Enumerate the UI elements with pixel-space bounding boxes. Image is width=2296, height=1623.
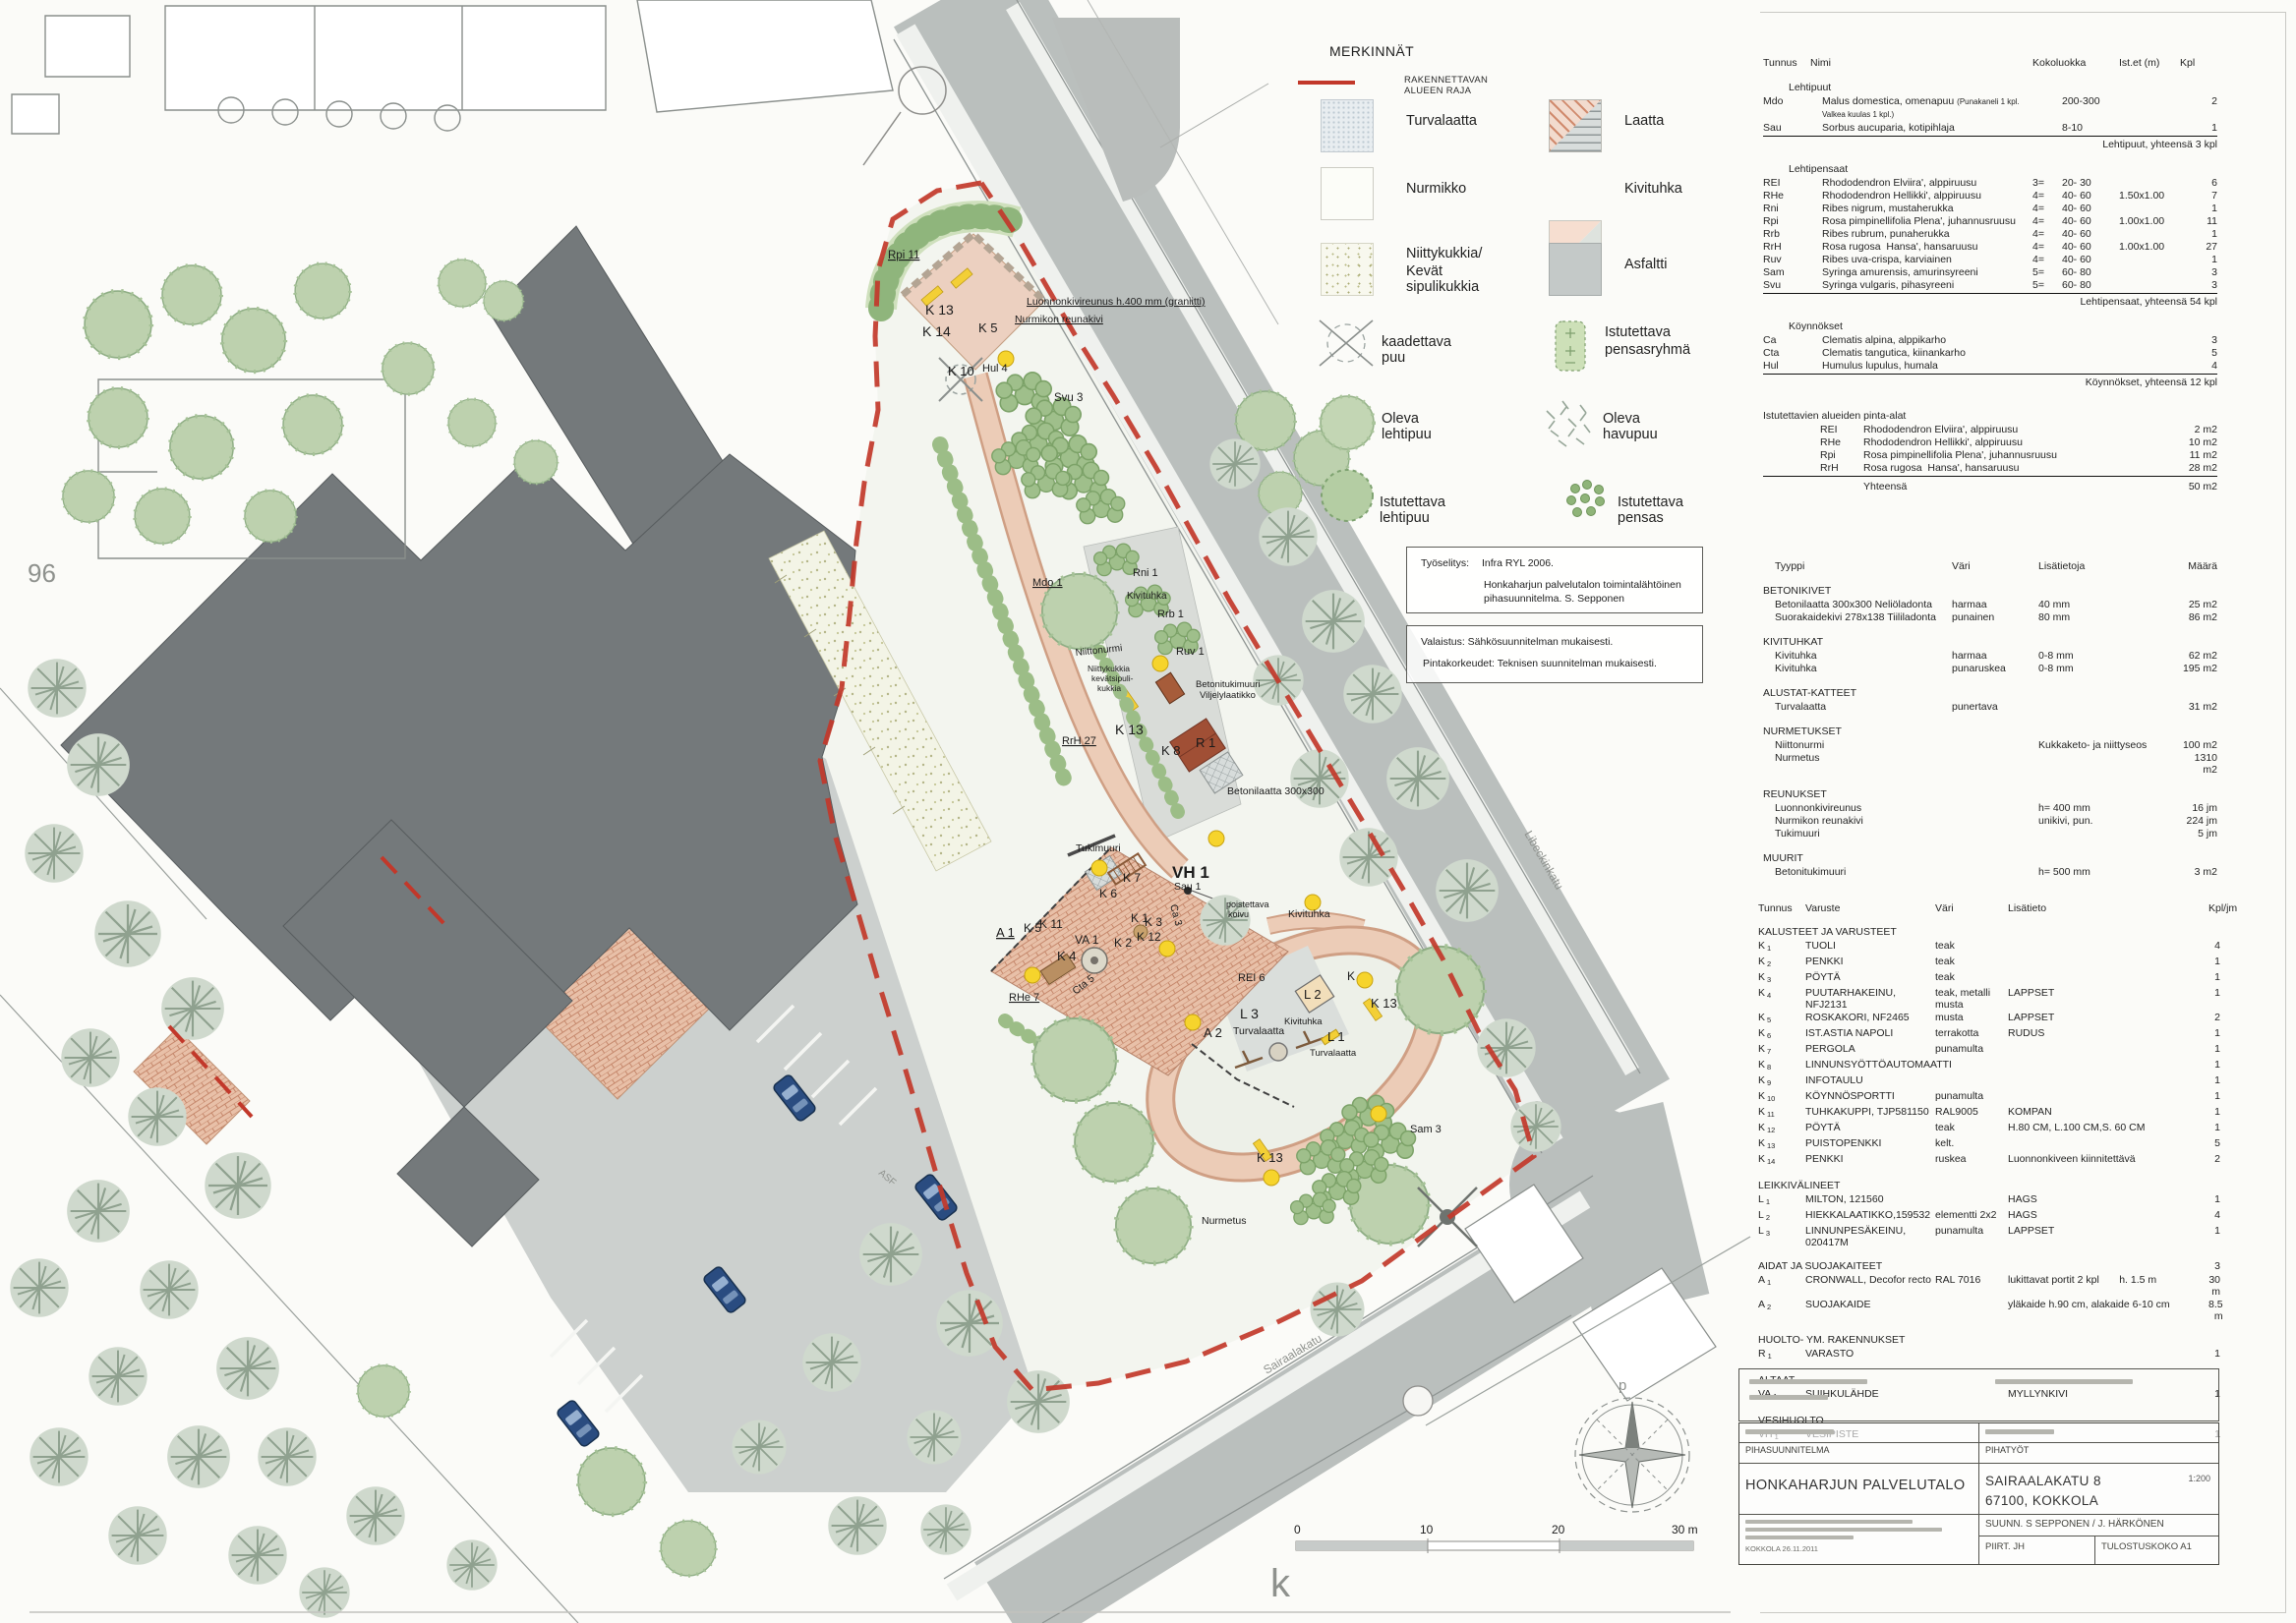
project-address1: SAIRAALAKATU 8 (1985, 1474, 2101, 1488)
plan-label: A 2 (1204, 1025, 1222, 1040)
plan-label: poistettava (1226, 899, 1269, 909)
legend-label: Laatta (1624, 113, 1664, 129)
boundary-label: RAKENNETTAVAN ALUEEN RAJA (1404, 75, 1488, 96)
equipment-row: L2HIEKKALAATIKKO,159532elementti 2x2HAGS… (1758, 1209, 2220, 1224)
surface-levels-note: Pintakorkeudet: Teknisen suunnitelman mu… (1423, 658, 1657, 669)
title-block-upper (1738, 1368, 2219, 1421)
materials-section-title: KIVITUHKAT (1763, 636, 2217, 648)
niittykukkia-swatch (1321, 243, 1374, 296)
plan-label: 30 m (1672, 1523, 1698, 1536)
material-row: Nurmetus1310 m2 (1763, 752, 2217, 776)
plan-label: Svu 3 (1054, 392, 1083, 404)
planted-deciduous-tree-icon (1316, 464, 1379, 532)
plan-label: A 1 (996, 925, 1015, 940)
work-description-box: Työselitys: Infra RYL 2006. Honkaharjun … (1406, 547, 1703, 613)
equipment-section-title: AIDAT JA SUOJAKAITEET3 (1758, 1260, 2220, 1272)
plan-label: Rni 1 (1133, 567, 1158, 579)
area-row: RHeRhododendron Hellikki', alppiruusu10 … (1763, 436, 2217, 448)
material-row: Kivituhkaharmaa0-8 mm62 m2 (1763, 650, 2217, 662)
area-total: Yhteensä50 m2 (1763, 481, 2217, 493)
equipment-section-title: LEIKKIVÄLINEET (1758, 1180, 2220, 1191)
plan-label: RrH 27 (1062, 735, 1096, 747)
equipment-row: K4PUUTARHAKEINU, NFJ2131teak, metalli mu… (1758, 987, 2220, 1011)
equipment-table: TunnusVarusteVäriLisätietoKpl/jmKALUSTEE… (1758, 902, 2220, 1444)
plan-label: K 6 (1099, 887, 1117, 900)
title-block-cell (1979, 1423, 2218, 1442)
plant-row: RrHRosa rugosa Hansa', hansaruusu4=40- 6… (1763, 241, 2217, 253)
plan-label: kukkia (1097, 683, 1121, 693)
plant-row: CaClematis alpina, alppikarho3 (1763, 334, 2217, 346)
work-desc-value: Infra RYL 2006. (1482, 557, 1554, 569)
lighting-note-box: Valaistus: Sähkösuunnitelman mukaisesti.… (1406, 625, 1703, 683)
plan-label: K 3 (1145, 915, 1162, 929)
plan-label: Viljelylaatikko (1200, 690, 1256, 701)
area-row: RrHRosa rugosa Hansa', hansaruusu28 m2 (1763, 462, 2217, 474)
plan-label: REI 6 (1238, 972, 1266, 984)
pinta-alat-title: Istutettavien alueiden pinta-alat (1763, 410, 2217, 422)
plan-label: K 4 (1057, 949, 1077, 963)
legend-label: Kevät sipulikukkia (1406, 263, 1479, 295)
plan-label: RHe 7 (1009, 992, 1039, 1004)
equipment-row: K13PUISTOPENKKIkelt.5 (1758, 1137, 2220, 1152)
materials-section-title: MUURIT (1763, 852, 2217, 864)
plant-row: RuvRibes uva-crispa, karviainen4=40- 601 (1763, 254, 2217, 265)
site-plan-drawing: 96Rpi 11K 13K 14K 5K 10Hul 4Svu 3Luonnon… (0, 0, 1760, 1623)
plan-label: K 12 (1137, 930, 1161, 944)
plan-label: 0 (1294, 1523, 1301, 1536)
schedule-total: Köynnökset, yhteensä 12 kpl (1763, 375, 2217, 388)
shrub-group-icon (1554, 319, 1587, 377)
plan-label: K 5 (978, 320, 998, 335)
plant-row: RrbRibes rubrum, punaherukka4=40- 601 (1763, 228, 2217, 240)
materials-header: TyyppiVäriLisätietojaMäärä (1763, 560, 2217, 572)
legend-label: Asfaltti (1624, 257, 1668, 272)
project-name: HONKAHARJUN PALVELUTALO (1739, 1464, 1979, 1514)
plant-row: SvuSyringa vulgaris, pihasyreeni5=60- 80… (1763, 279, 2217, 291)
planted-shrub-icon (1563, 479, 1613, 527)
asfaltti-swatch (1549, 243, 1602, 296)
boundary-line-sample (1298, 81, 1355, 85)
legend-title: MERKINNÄT (1329, 43, 1414, 59)
area-row: REIRhododendron Elviira', alppiruusu2 m2 (1763, 424, 2217, 435)
equipment-row: K6IST.ASTIA NAPOLIterrakottaRUDUS1 (1758, 1027, 2220, 1042)
materials-section-title: BETONIKIVET (1763, 585, 2217, 597)
equipment-section-title: HUOLTO- YM. RAKENNUKSET (1758, 1334, 2220, 1346)
material-row: Betonilaatta 300x300 Neliöladontaharmaa4… (1763, 599, 2217, 610)
equipment-row: A2SUOJAKAIDEyläkaide h.90 cm, alakaide 6… (1758, 1299, 2220, 1322)
plan-label: K 8 (1161, 743, 1181, 758)
plan-label: K 7 (1123, 871, 1141, 885)
materials-section-title: ALUSTAT-KATTEET (1763, 687, 2217, 699)
plan-label: L 1 (1327, 1029, 1345, 1044)
area-row: RpiRosa pimpinellifolia Plena', juhannus… (1763, 449, 2217, 461)
equipment-row: K1TUOLIteak4 (1758, 940, 2220, 955)
laatta-swatch (1549, 99, 1602, 152)
legend-label: Nurmikko (1406, 181, 1466, 197)
plan-label: Rrb 1 (1157, 609, 1184, 620)
plan-label: K (1347, 969, 1355, 983)
drawing-sheet: 96Rpi 11K 13K 14K 5K 10Hul 4Svu 3Luonnon… (0, 0, 2296, 1623)
plan-label: K 11 (1039, 917, 1063, 931)
legend-label: Istutettava (1605, 324, 1671, 340)
plant-row: SamSyringa amurensis, amurinsyreeni5=60-… (1763, 266, 2217, 278)
equipment-row: K9INFOTAULU1 (1758, 1074, 2220, 1089)
turvalaatta-swatch (1321, 99, 1374, 152)
title-block: PIHASUUNNITELMA PIHATYÖT HONKAHARJUN PAL… (1738, 1422, 2219, 1565)
equipment-row: A1CRONWALL, Decofor rectoRAL 7016lukitta… (1758, 1274, 2220, 1298)
plan-label: p (1619, 1377, 1626, 1394)
equipment-row: K5ROSKAKORI, NF2465mustaLAPPSET2 (1758, 1012, 2220, 1026)
plan-label: VH 1 (1172, 863, 1209, 882)
legend-label: Oleva havupuu (1603, 411, 1658, 442)
schedule-section-title: Köynnökset (1763, 320, 2217, 332)
plan-label: Luonnonkivireunus h.400 mm (graniitti) (1027, 296, 1206, 308)
equipment-header: TunnusVarusteVäriLisätietoKpl/jm (1758, 902, 2220, 914)
material-row: Luonnonkivireunush= 400 mm16 jm (1763, 802, 2217, 814)
plan-label: Rpi 11 (888, 250, 919, 261)
legend-label: Turvalaatta (1406, 113, 1477, 129)
material-row: Tukimuuri5 jm (1763, 828, 2217, 840)
plan-label: Ruv 1 (1176, 646, 1205, 658)
firm-info-cell: KOKKOLA 26.11.2011 (1739, 1515, 1979, 1564)
plant-row: RniRibes nigrum, mustaherukka4=40- 601 (1763, 203, 2217, 214)
plan-label: Betonilaatta 300x300 (1227, 785, 1325, 797)
equipment-row: K2PENKKIteak1 (1758, 956, 2220, 970)
plan-label: R 1 (1196, 735, 1215, 750)
plan-label: 96 (28, 558, 56, 588)
plant-row: RHeRhododendron Hellikki', alppiruusu4=4… (1763, 190, 2217, 202)
schedule-total: Lehtipuut, yhteensä 3 kpl (1763, 137, 2217, 150)
plan-label: Sam 3 (1410, 1124, 1442, 1135)
plan-label: Hul 4 (982, 363, 1008, 375)
nurmikko-swatch (1321, 167, 1374, 220)
plan-label: k (1270, 1562, 1291, 1605)
work-desc-line2: Honkaharjun palvelutalon toimintalähtöin… (1484, 579, 1681, 591)
plan-label: Mdo 1 (1032, 577, 1063, 589)
plan-label: 20 (1552, 1523, 1565, 1536)
equipment-row: K8LINNUNSYÖTTÖAUTOMAATTI1 (1758, 1059, 2220, 1073)
materials-table: TyyppiVäriLisätietojaMääräBETONIKIVETBet… (1763, 560, 2217, 879)
plan-label: K 10 (948, 364, 974, 378)
plan-label: Betonitukimuuri (1196, 679, 1260, 690)
existing-conifer-icon (1537, 391, 1600, 459)
plan-label: Turvalaatta (1233, 1025, 1284, 1037)
work-desc-label: Työselitys: (1421, 557, 1469, 569)
plant-schedule-table: TunnusNimiKokoluokkaIst.et (m)KplLehtipu… (1763, 57, 2217, 493)
plan-label: Sau 1 (1174, 881, 1202, 893)
equipment-row: K11TUHKAKUPPI, TJP581150RAL9005KOMPAN1 (1758, 1106, 2220, 1121)
project-address2: 67100, KOKKOLA (1985, 1493, 2098, 1508)
plan-label: K 13 (1371, 996, 1397, 1011)
doc-type: PIHASUUNNITELMA (1739, 1443, 1979, 1463)
plan-label: Nurmikon reunakivi (1015, 314, 1103, 325)
plan-label: K 14 (922, 323, 951, 339)
felled-tree-icon (1316, 317, 1377, 377)
plan-label: Nurmetus (1202, 1215, 1247, 1227)
equipment-row: K3PÖYTÄteak1 (1758, 971, 2220, 986)
legend-label: kaadettava puu (1382, 334, 1451, 366)
legend-label: Niittykukkia/ (1406, 246, 1482, 261)
material-row: NiittonurmiKukkaketo- ja niittyseos100 m… (1763, 739, 2217, 751)
date-place: KOKKOLA 26.11.2011 (1745, 1544, 1972, 1553)
legend: MERKINNÄT RAKENNETTAVAN ALUEEN RAJA Turv… (0, 0, 53, 106)
equipment-row: K7PERGOLApunamulta1 (1758, 1043, 2220, 1058)
existing-deciduous-tree-icon (1316, 391, 1379, 459)
plan-label: K 2 (1114, 936, 1132, 950)
plan-label: Kivituhka (1127, 591, 1167, 602)
schedule-section-title: Lehtipensaat (1763, 163, 2217, 175)
plan-label: Kivituhka (1288, 908, 1330, 920)
print-size: TULOSTUSKOKO A1 (2095, 1536, 2218, 1564)
plant-row: SauSorbus aucuparia, kotipihlaja8-101 (1763, 122, 2217, 134)
doc-type2: PIHATYÖT (1979, 1443, 2218, 1463)
plan-label: K 13 (925, 302, 954, 318)
plan-label: VA 1 (1075, 933, 1099, 947)
legend-label: Oleva lehtipuu (1382, 411, 1432, 442)
plan-label: L 2 (1304, 987, 1322, 1002)
plant-row: REIRhododendron Elviira', alppiruusu3=20… (1763, 177, 2217, 189)
plant-row: MdoMalus domestica, omenapuu (Punakaneli… (1763, 95, 2217, 121)
legend-label: Kivituhka (1624, 181, 1682, 197)
plan-label: Kivituhka (1284, 1016, 1323, 1027)
schedule-total: Lehtipensaat, yhteensä 54 kpl (1763, 294, 2217, 308)
material-row: Betonitukimuurih= 500 mm3 m2 (1763, 866, 2217, 878)
plant-schedule-header: TunnusNimiKokoluokkaIst.et (m)Kpl (1763, 57, 2217, 69)
plan-label: K 13 (1115, 722, 1144, 737)
plan-label: Turvalaatta (1310, 1048, 1357, 1059)
schedule-section-title: Lehtipuut (1763, 82, 2217, 93)
plant-row: RpiRosa pimpinellifolia Plena', juhannus… (1763, 215, 2217, 227)
material-row: Kivituhkapunaruskea0-8 mm195 m2 (1763, 663, 2217, 674)
equipment-row: R1VARASTO1 (1758, 1348, 2220, 1362)
drafter: PIIRT. JH (1979, 1536, 2095, 1564)
plan-label: kevätsipuli- (1091, 673, 1134, 683)
designer: SUUNN. S SEPPONEN / J. HÄRKÖNEN (1979, 1515, 2218, 1536)
work-desc-line3: pihasuunnitelma. S. Sepponen (1484, 593, 1624, 605)
equipment-row: L3LINNUNPESÄKEINU, 020417MpunamultaLAPPS… (1758, 1225, 2220, 1248)
plant-row: CtaClematis tangutica, kiinankarho5 (1763, 347, 2217, 359)
rule (1763, 476, 2217, 477)
equipment-row: L1MILTON, 121560HAGS1 (1758, 1193, 2220, 1208)
materials-section-title: NURMETUKSET (1763, 725, 2217, 737)
material-row: Nurmikon reunakiviunikivi, pun.224 jm (1763, 815, 2217, 827)
equipment-section-title: KALUSTEET JA VARUSTEET (1758, 926, 2220, 938)
plan-label: L 3 (1240, 1006, 1259, 1021)
plan-label: K 13 (1257, 1150, 1283, 1165)
plan-label: 10 (1420, 1523, 1434, 1536)
legend-label: Istutettava lehtipuu (1380, 494, 1445, 526)
plant-row: HulHumulus lupulus, humala4 (1763, 360, 2217, 372)
materials-section-title: REUNUKSET (1763, 788, 2217, 800)
title-block-cell (1739, 1423, 1979, 1442)
plan-label: koivu (1228, 909, 1249, 919)
equipment-row: K14PENKKIruskeaLuonnonkiveen kiinnitettä… (1758, 1153, 2220, 1168)
lighting-note: Valaistus: Sähkösuunnitelman mukaisesti. (1421, 636, 1613, 648)
legend-label: Istutettava pensas (1618, 494, 1683, 526)
plan-label: Niittykukkia (1088, 664, 1130, 673)
plan-label: Tukimuuri (1076, 842, 1121, 854)
material-row: Suorakaidekivi 278x138 Tiililadontapunai… (1763, 611, 2217, 623)
legend-label: pensasryhmä (1605, 342, 1690, 358)
material-row: Turvalaattapunertava31 m2 (1763, 701, 2217, 713)
drawing-scale: 1:200 (2188, 1474, 2210, 1483)
equipment-row: K10KÖYNNÖSPORTTIpunamulta1 (1758, 1090, 2220, 1105)
equipment-row: K12PÖYTÄteakH.80 CM, L.100 CM,S. 60 CM1 (1758, 1122, 2220, 1136)
